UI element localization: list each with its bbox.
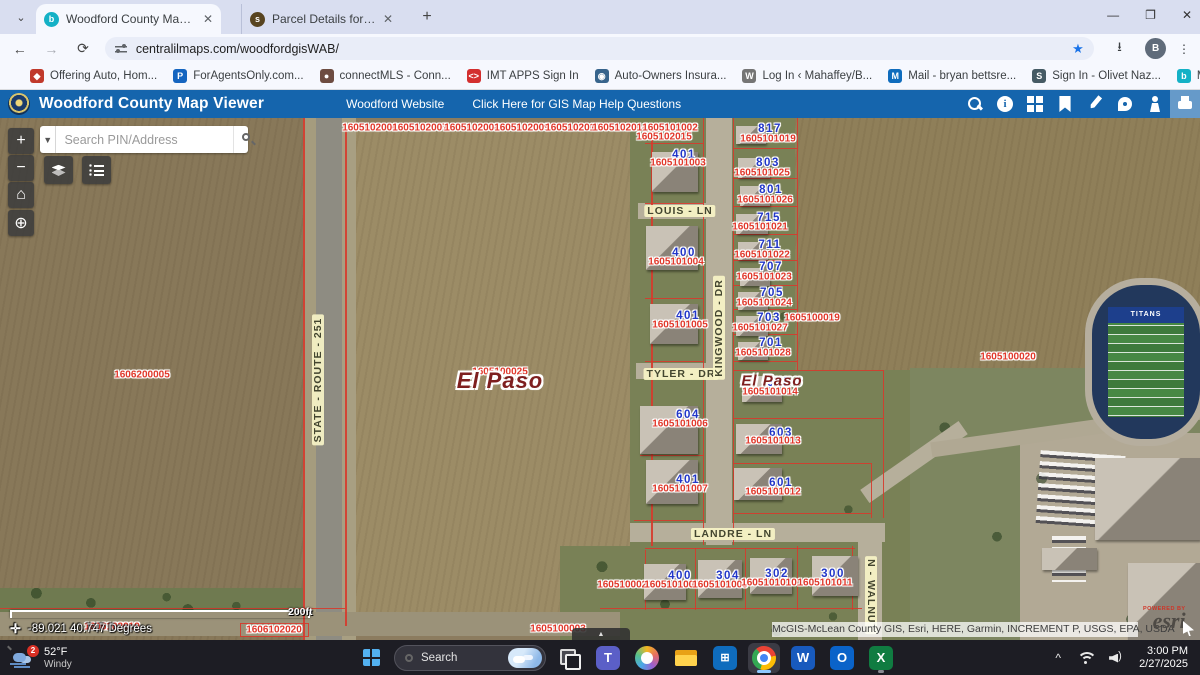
parcel-line: [871, 463, 872, 518]
parcel-pin-label[interactable]: 1605101022: [734, 250, 790, 261]
bookmark-favicon: P: [173, 69, 187, 83]
building-roof: [1042, 548, 1097, 570]
crosshair-icon[interactable]: ✛: [10, 621, 21, 637]
map-search-box: ▼: [40, 126, 248, 153]
search-icon: [405, 654, 413, 662]
outlook-icon: O: [830, 646, 854, 670]
parcel-line: [883, 370, 884, 518]
tray-chevron-icon[interactable]: ^: [1055, 651, 1061, 665]
parcel-line: [240, 623, 241, 637]
city-label: El Paso: [741, 373, 802, 390]
parcel-pin-label[interactable]: 1605102015: [636, 132, 692, 143]
store-icon: ⊞: [713, 646, 737, 670]
parcel-pin-label[interactable]: 1605101019: [740, 134, 796, 145]
windows-taskbar: 2 52°F Windy Search T⊞WOX ^ 3:00 PM 2/27…: [0, 640, 1200, 675]
taskbar-chrome-button[interactable]: [748, 643, 780, 673]
search-tool-button[interactable]: [960, 90, 990, 118]
parcel-pin-label[interactable]: 1605100020: [980, 352, 1036, 363]
streetview-icon: [1147, 96, 1163, 112]
football-field: TITANS: [1085, 278, 1200, 446]
info-tool-button[interactable]: [990, 90, 1020, 118]
parcel-pin-label[interactable]: 1605101028: [735, 348, 791, 359]
parcel-line: [703, 118, 704, 545]
parcel-line: [308, 623, 309, 637]
active-app-indicator: [757, 670, 771, 673]
excel-icon: X: [869, 646, 893, 670]
bookmark-item[interactable]: PForAgentsOnly.com...: [173, 69, 303, 83]
parcel-pin-label[interactable]: 1605102009: [494, 123, 550, 134]
parcel-pin-label[interactable]: 1605101026: [737, 195, 793, 206]
copilot-icon: [635, 646, 659, 670]
forward-button[interactable]: →: [40, 37, 64, 61]
search-highlight-image: [508, 648, 542, 668]
parcel-line: [733, 206, 797, 207]
start-button[interactable]: [355, 643, 387, 673]
bookmark-item[interactable]: ◉Auto-Owners Insura...: [595, 69, 727, 83]
bookmark-label: ForAgentsOnly.com...: [193, 70, 303, 82]
parcel-pin-label[interactable]: 1605101006: [652, 419, 708, 430]
bookmark-label: Log In ‹ Mahaffey/B...: [762, 70, 872, 82]
wifi-icon[interactable]: [1077, 652, 1093, 664]
city-label: El Paso: [457, 368, 543, 394]
task-view-icon: [557, 646, 581, 670]
parcel-pin-label[interactable]: 1605101013: [745, 436, 801, 447]
draw-tool-button[interactable]: [1110, 90, 1140, 118]
parcel-pin-label[interactable]: 1605101021: [732, 222, 788, 233]
parcel-line: [797, 118, 798, 370]
parcel-pin-label[interactable]: 1606200005: [114, 370, 170, 381]
taskbar-outlook-button[interactable]: O: [826, 643, 858, 673]
teams-icon: T: [596, 646, 620, 670]
parcel-line: [640, 455, 703, 456]
parcel-line: [600, 608, 862, 609]
browser-menu-icon[interactable]: ⋮: [1178, 42, 1190, 56]
header-toolbar: [960, 90, 1200, 118]
taskbar-copilot-button[interactable]: [631, 643, 663, 673]
bookmarks-bar: ◆Offering Auto, Hom...PForAgentsOnly.com…: [0, 63, 1200, 90]
parcel-pin-label[interactable]: 1605102008: [444, 123, 500, 134]
parcel-line: [733, 234, 797, 235]
parcel-pin-label[interactable]: 1605101023: [736, 272, 792, 283]
parcel-line: [645, 203, 703, 204]
bookmark-label: Offering Auto, Hom...: [50, 70, 157, 82]
info-icon: [997, 96, 1013, 112]
parcel-pin-label[interactable]: 1605101011: [797, 578, 852, 589]
building-roof: [1095, 458, 1200, 540]
browser-tab-strip: ⌄ b Woodford County Map Viewer ✕ s Parce…: [0, 0, 1200, 34]
volume-icon[interactable]: [1109, 652, 1123, 664]
layers-button[interactable]: [44, 156, 73, 184]
taskbar-search-box[interactable]: Search: [394, 645, 546, 671]
parcel-line: [303, 118, 305, 640]
legend-icon: [89, 164, 104, 176]
taskbar-clock[interactable]: 3:00 PM 2/27/2025: [1139, 645, 1188, 671]
parcel-line: [733, 463, 871, 464]
download-icon[interactable]: ⭳: [1108, 37, 1132, 61]
parcel-line: [645, 298, 703, 299]
parcel-line: [240, 636, 308, 637]
parcel-pin-label[interactable]: 1605101007: [652, 484, 708, 495]
tab-favicon: s: [250, 12, 265, 27]
parcel-pin-label[interactable]: 1605101009: [692, 580, 748, 591]
parcel-pin-label[interactable]: 1605101003: [650, 158, 706, 169]
bookmarks-icon: [1057, 96, 1073, 112]
tab-favicon: b: [44, 12, 59, 27]
parcel-line: [645, 361, 703, 362]
zoom-in-button[interactable]: +: [8, 128, 34, 154]
word-icon: W: [791, 646, 815, 670]
new-tab-button[interactable]: +: [415, 5, 439, 29]
parcel-pin-label[interactable]: 1606102020: [246, 625, 302, 636]
gis-help-link[interactable]: Click Here for GIS Map Help Questions: [472, 97, 681, 111]
address-bar[interactable]: centralilmaps.com/woodfordgisWAB/ ★: [105, 37, 1094, 60]
search-source-dropdown[interactable]: ▼: [40, 126, 56, 153]
tab-search-chevron-icon[interactable]: ⌄: [8, 4, 34, 30]
parcel-line: [733, 370, 883, 371]
layers-icon: [51, 163, 67, 177]
notification-badge: 2: [27, 645, 39, 657]
bookmark-item[interactable]: ●connectMLS - Conn...: [320, 69, 451, 83]
bookmark-item[interactable]: ◆Offering Auto, Hom...: [30, 69, 157, 83]
tab-title: Woodford County Map Viewer: [66, 12, 197, 26]
street-label: STATE - ROUTE - 251: [312, 315, 324, 446]
parcel-pin-label[interactable]: 1605102007: [392, 123, 448, 134]
parcel-pin-label[interactable]: 1605101012: [745, 487, 801, 498]
screen: ⌄ b Woodford County Map Viewer ✕ s Parce…: [0, 0, 1200, 675]
taskbar-explorer-button[interactable]: [670, 643, 702, 673]
browser-toolbar: ← → ⟳ centralilmaps.com/woodfordgisWAB/ …: [0, 34, 1200, 63]
window-controls: — ❐ ✕: [1107, 0, 1192, 30]
parcel-pin-label[interactable]: 1605101027: [732, 323, 788, 334]
streetview-tool-button[interactable]: [1140, 90, 1170, 118]
street-label: LANDRE - LN: [691, 528, 775, 540]
bookmark-item[interactable]: <>IMT APPS Sign In: [467, 69, 579, 83]
tab-parcel-details[interactable]: s Parcel Details for 1605100025 ✕: [241, 4, 401, 34]
parcel-line: [733, 361, 797, 362]
reload-button[interactable]: ⟳: [71, 37, 95, 61]
bookmark-item[interactable]: SSign In - Olivet Naz...: [1032, 69, 1161, 83]
close-window-button[interactable]: ✕: [1182, 8, 1192, 22]
tab-title: Parcel Details for 1605100025: [272, 12, 377, 26]
basemap-icon: [1027, 96, 1043, 112]
back-button[interactable]: ←: [8, 37, 32, 61]
bookmark-label: Auto-Owners Insura...: [615, 70, 727, 82]
weather-description: Windy: [44, 659, 72, 670]
bookmark-favicon: ●: [320, 69, 334, 83]
draw-icon: [1117, 96, 1133, 112]
pinned-apps: T⊞WOX: [553, 643, 897, 673]
street-label: TYLER - DR: [644, 368, 719, 380]
close-tab-icon[interactable]: ✕: [203, 12, 213, 26]
taskbar-excel-button[interactable]: X: [865, 643, 897, 673]
measure-icon: [1087, 96, 1103, 112]
search-input[interactable]: [56, 133, 233, 147]
legend-button[interactable]: [82, 156, 111, 184]
page-title: Woodford County Map Viewer: [39, 95, 264, 113]
parcel-line: [733, 513, 871, 514]
taskbar-center: Search T⊞WOX: [355, 643, 897, 673]
explorer-icon: [674, 646, 698, 670]
scale-label: 200ft: [288, 606, 313, 618]
bookmark-favicon: ◆: [30, 69, 44, 83]
search-submit-button[interactable]: [233, 126, 248, 153]
parcel-pin-label[interactable]: 1605101024: [736, 298, 792, 309]
parcel-line: [345, 126, 347, 626]
parcel-pin-label[interactable]: 1605101005: [652, 320, 708, 331]
maximize-button[interactable]: ❐: [1145, 8, 1156, 22]
parcel-line: [645, 143, 703, 144]
parcel-pin-label[interactable]: 1605102006: [342, 123, 398, 134]
bookmark-item[interactable]: WLog In ‹ Mahaffey/B...: [742, 69, 872, 83]
profile-avatar[interactable]: B: [1145, 38, 1166, 59]
search-icon: [967, 96, 983, 112]
print-tool-button[interactable]: [1170, 90, 1200, 118]
bookmark-favicon: W: [742, 69, 756, 83]
parcel-line: [634, 520, 704, 521]
taskbar-weather-widget[interactable]: 2 52°F Windy: [10, 646, 160, 670]
overview-map-toggle[interactable]: ▲: [572, 628, 630, 640]
bookmark-favicon: b: [1177, 69, 1191, 83]
bookmark-favicon: S: [1032, 69, 1046, 83]
zoom-out-button[interactable]: −: [8, 155, 34, 181]
parcel-pin-label[interactable]: 1605101010: [741, 578, 797, 589]
time: 3:00 PM: [1139, 645, 1188, 658]
bookmark-item[interactable]: MMail - bryan bettsre...: [888, 69, 1016, 83]
field-yard-lines: [1108, 307, 1184, 417]
basemap-tool-button[interactable]: [1020, 90, 1050, 118]
open-app-indicator: [878, 670, 884, 673]
parcel-pin-label[interactable]: 1605101025: [734, 168, 790, 179]
coordinates-readout: ✛ -89.021 40.747 Degrees: [10, 621, 152, 637]
parcel-line: [645, 548, 855, 549]
bookmarks-tool-button[interactable]: [1050, 90, 1080, 118]
bookmark-items: ◆Offering Auto, Hom...PForAgentsOnly.com…: [30, 69, 1200, 83]
date: 2/27/2025: [1139, 658, 1188, 671]
taskbar-word-button[interactable]: W: [787, 643, 819, 673]
parcel-pin-label[interactable]: 1605100019: [784, 313, 840, 324]
minimize-button[interactable]: —: [1107, 8, 1119, 22]
street-label: LOUIS - LN: [644, 205, 715, 217]
taskbar-store-button[interactable]: ⊞: [709, 643, 741, 673]
system-tray: ^ 3:00 PM 2/27/2025: [1055, 645, 1188, 671]
map-viewer-header: Woodford County Map Viewer Woodford Webs…: [0, 90, 1200, 118]
url-text: centralilmaps.com/woodfordgisWAB/: [136, 42, 339, 56]
taskbar-task-view-button[interactable]: [553, 643, 585, 673]
weather-temperature: 52°F: [44, 646, 72, 659]
home-extent-button[interactable]: ⌂: [8, 182, 34, 208]
county-seal-logo: [8, 93, 30, 115]
parcel-line: [733, 148, 797, 149]
bookmark-item[interactable]: bMcGIS - McLean Co...: [1177, 69, 1200, 83]
woodford-website-link[interactable]: Woodford Website: [346, 97, 444, 111]
field-endzone: TITANS: [1108, 307, 1184, 323]
windy-weather-icon: 2: [10, 649, 36, 667]
scale-bar: [10, 610, 310, 618]
my-location-button[interactable]: ⊕: [8, 210, 34, 236]
map-canvas[interactable]: TITANS 817803801715711707705703701401400…: [0, 118, 1200, 640]
close-tab-icon[interactable]: ✕: [383, 12, 393, 26]
parcel-pin-label[interactable]: 1605101004: [648, 257, 704, 268]
chrome-icon: [752, 646, 776, 670]
bookmark-star-icon[interactable]: ★: [1072, 41, 1084, 57]
map-attribution: McGIS-McLean County GIS, Esri, HERE, Gar…: [772, 622, 1138, 637]
bookmark-favicon: M: [888, 69, 902, 83]
bookmark-label: Mail - bryan bettsre...: [908, 70, 1016, 82]
windows-logo-icon: [363, 649, 380, 666]
taskbar-teams-button[interactable]: T: [592, 643, 624, 673]
print-icon: [1177, 96, 1193, 112]
tab-map-viewer[interactable]: b Woodford County Map Viewer ✕: [36, 4, 221, 34]
parcel-line: [733, 418, 883, 419]
measure-tool-button[interactable]: [1080, 90, 1110, 118]
bookmark-label: Sign In - Olivet Naz...: [1052, 70, 1161, 82]
bookmark-favicon: <>: [467, 69, 481, 83]
bookmark-label: connectMLS - Conn...: [340, 70, 451, 82]
esri-logo: POWERED BY esri: [1143, 606, 1186, 630]
bookmark-favicon: ◉: [595, 69, 609, 83]
bookmark-label: IMT APPS Sign In: [487, 70, 579, 82]
site-settings-icon[interactable]: [115, 44, 127, 54]
street-label: KINGWOOD - DR: [713, 276, 725, 380]
